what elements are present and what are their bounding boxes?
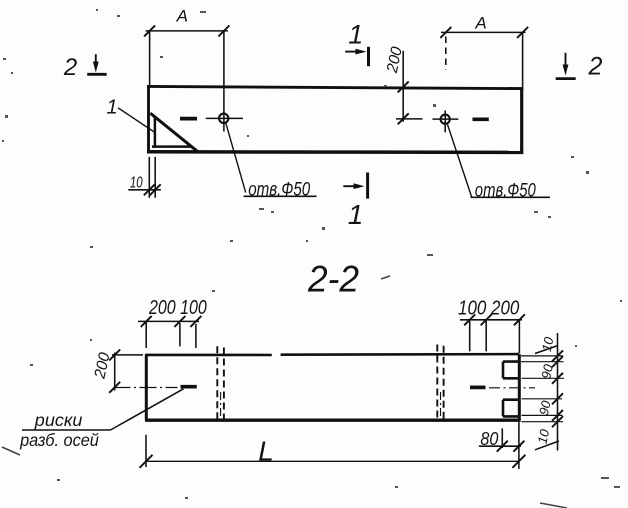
svg-text:отв.Ф50: отв.Ф50 [475, 180, 536, 201]
svg-text:отв.Ф50: отв.Ф50 [248, 179, 310, 200]
svg-text:200 100: 200 100 [148, 297, 207, 319]
svg-text:A: A [176, 7, 188, 26]
svg-text:разб. осей: разб. осей [19, 430, 99, 450]
svg-text:1: 1 [348, 199, 364, 230]
svg-text:1: 1 [348, 19, 363, 49]
svg-text:100 200: 100 200 [458, 297, 519, 319]
svg-text:80: 80 [480, 428, 499, 449]
svg-text:2-2: 2-2 [307, 258, 359, 299]
svg-text:1: 1 [106, 96, 117, 118]
svg-text:10: 10 [130, 175, 143, 192]
svg-text:2: 2 [588, 53, 603, 81]
svg-text:2: 2 [63, 54, 77, 81]
svg-text:A: A [474, 14, 486, 33]
svg-text:L: L [258, 435, 274, 466]
svg-text:риски: риски [34, 410, 83, 430]
